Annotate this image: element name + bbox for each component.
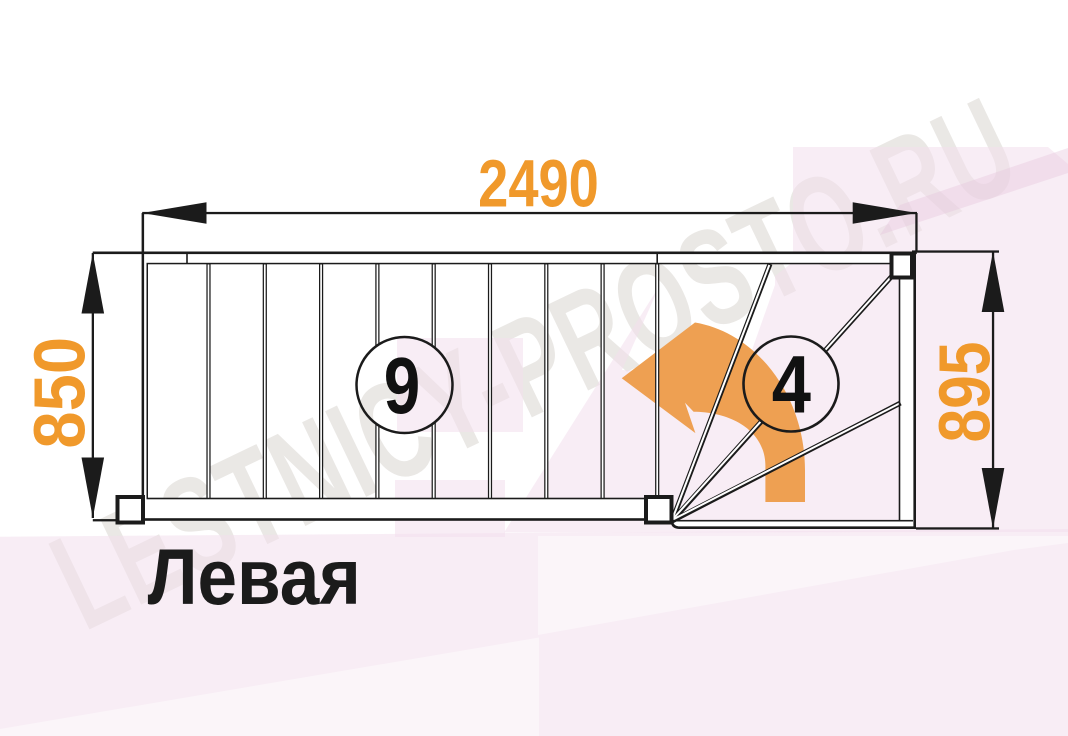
svg-text:2490: 2490 <box>478 146 599 221</box>
svg-text:4: 4 <box>772 340 812 431</box>
svg-text:895: 895 <box>925 342 1005 443</box>
svg-text:Левая: Левая <box>148 533 361 621</box>
svg-text:9: 9 <box>384 341 420 431</box>
svg-text:850: 850 <box>19 337 100 449</box>
